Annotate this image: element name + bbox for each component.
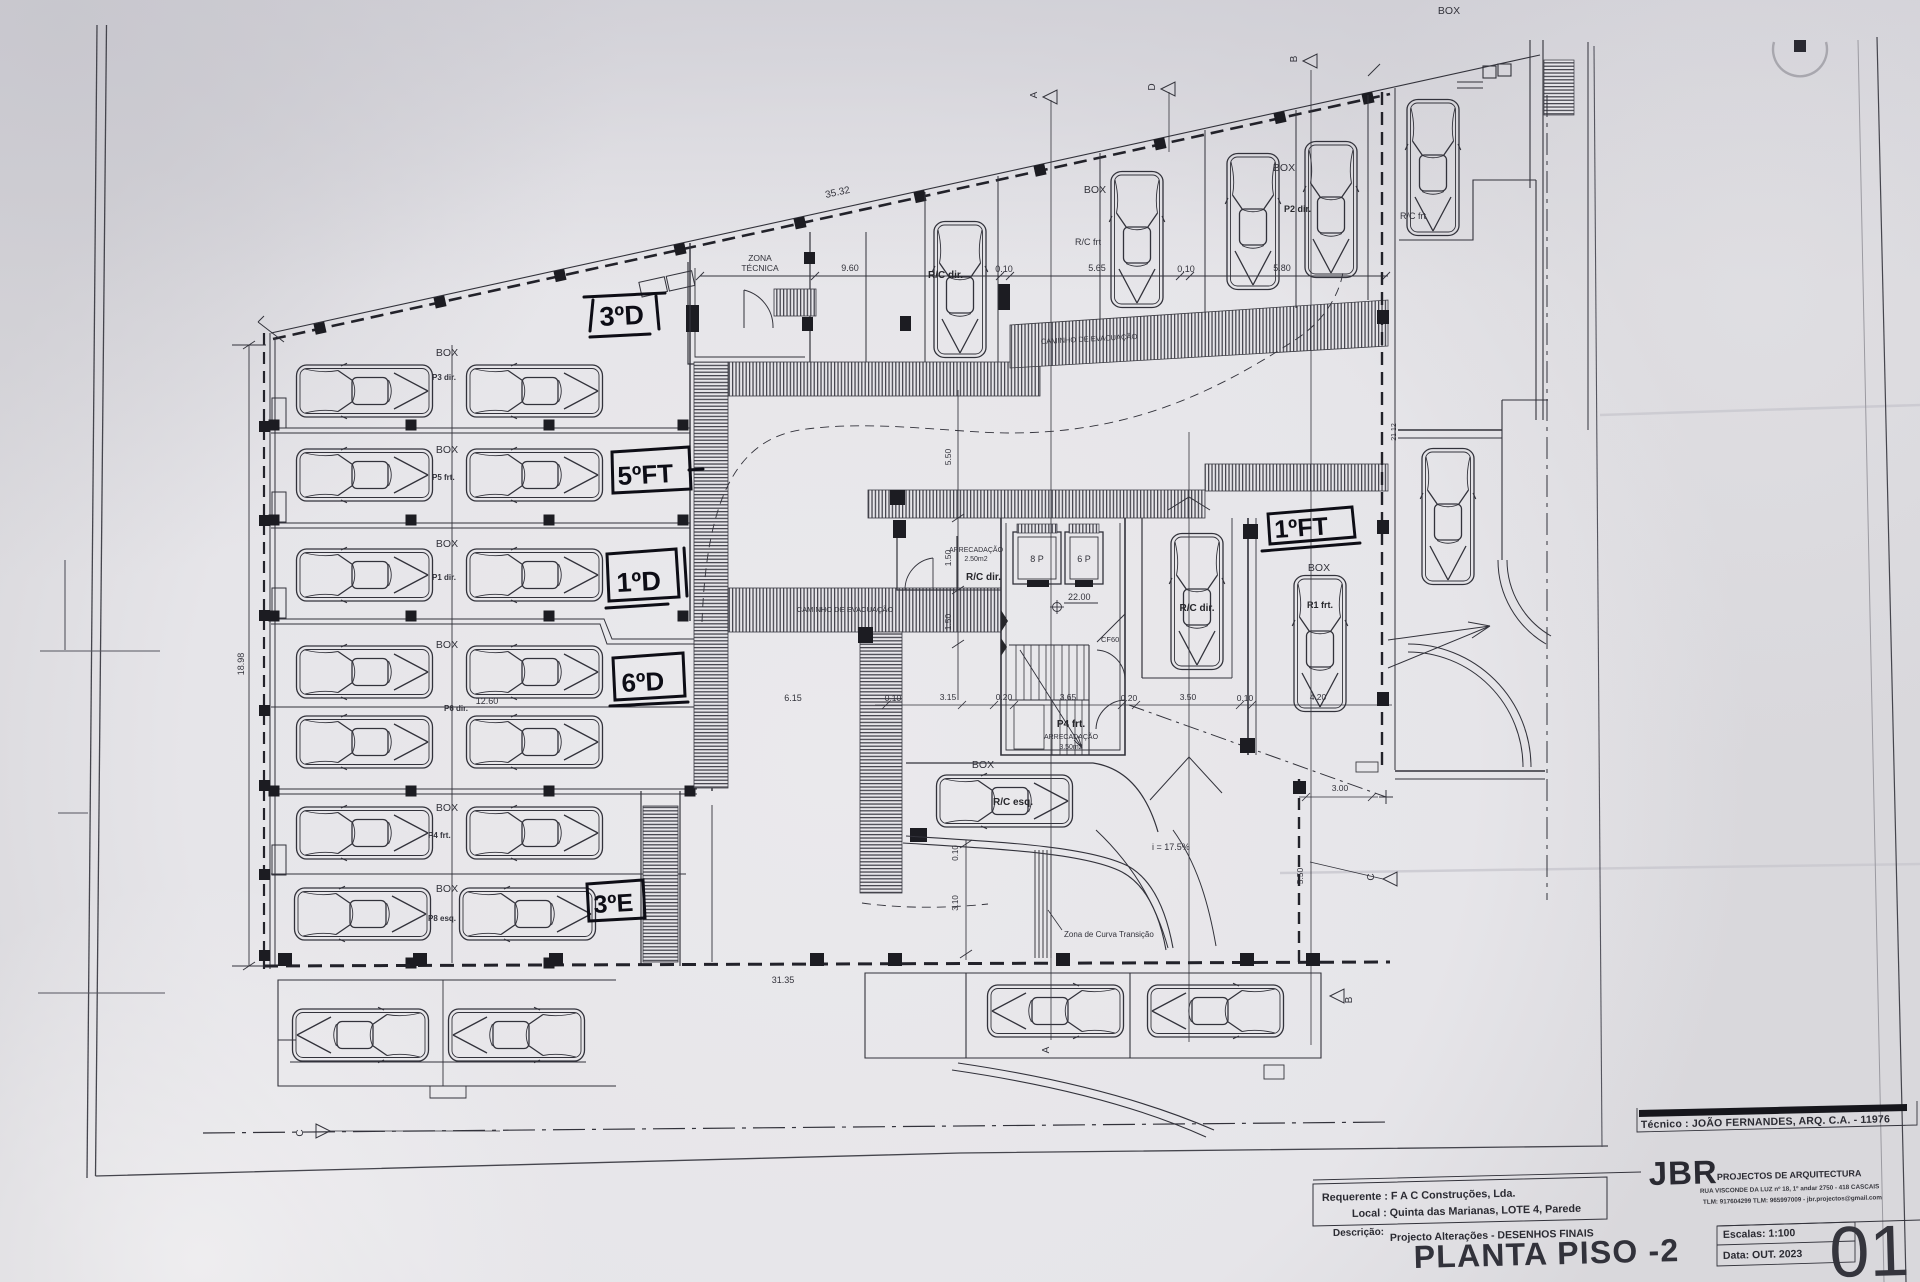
svg-text:JBR: JBR: [1648, 1153, 1718, 1192]
svg-text:3.15: 3.15: [940, 692, 957, 702]
svg-text:3ºE: 3ºE: [593, 889, 634, 919]
svg-text:22.00: 22.00: [1068, 592, 1091, 602]
svg-text:21.12: 21.12: [1391, 423, 1398, 441]
svg-text:BOX: BOX: [436, 538, 458, 550]
svg-text:ZONA: ZONA: [748, 253, 772, 263]
svg-text:BOX: BOX: [1084, 184, 1106, 196]
svg-text:ARRECADAÇÃO: ARRECADAÇÃO: [1044, 732, 1099, 741]
svg-text:6.15: 6.15: [784, 693, 802, 703]
svg-text:BOX: BOX: [436, 883, 458, 895]
svg-text:0.10: 0.10: [1237, 693, 1254, 703]
svg-text:R/C dir.: R/C dir.: [966, 572, 1001, 583]
svg-text:2.50m2: 2.50m2: [964, 556, 987, 563]
svg-text:P3 dir.: P3 dir.: [432, 373, 456, 382]
svg-text:CF60: CF60: [1101, 635, 1119, 644]
svg-text:0.20: 0.20: [1121, 693, 1138, 703]
svg-text:BOX: BOX: [436, 802, 458, 814]
svg-text:5.50: 5.50: [943, 448, 953, 465]
svg-text:R/C dir.: R/C dir.: [1179, 603, 1214, 614]
svg-text:B: B: [1344, 996, 1355, 1003]
svg-text:A: A: [1029, 91, 1040, 98]
svg-text:1ºD: 1ºD: [616, 566, 662, 598]
svg-text:PLANTA PISO -2: PLANTA PISO -2: [1413, 1232, 1680, 1275]
svg-text:TÉCNICA: TÉCNICA: [741, 263, 779, 273]
svg-text:3.65: 3.65: [1060, 692, 1077, 702]
svg-text:0.10: 0.10: [951, 845, 960, 861]
svg-text:P5 frt.: P5 frt.: [432, 473, 455, 482]
svg-text:C: C: [295, 1129, 306, 1136]
svg-text:CAMINHO DE EVACUAÇÃO: CAMINHO DE EVACUAÇÃO: [797, 605, 894, 614]
svg-text:Data: OUT. 2023: Data: OUT. 2023: [1723, 1248, 1803, 1262]
svg-text:D: D: [1147, 83, 1158, 90]
svg-text:P2 dir.: P2 dir.: [1284, 204, 1311, 214]
svg-text:3ºD: 3ºD: [599, 300, 645, 332]
svg-text:BOX: BOX: [972, 759, 994, 771]
svg-text:3.50m2: 3.50m2: [1059, 744, 1082, 751]
svg-text:5ºFT: 5ºFT: [617, 458, 674, 491]
svg-text:P8 esq.: P8 esq.: [428, 914, 456, 923]
svg-text:1ºFT: 1ºFT: [1273, 512, 1328, 544]
svg-text:Escalas: 1:100: Escalas: 1:100: [1723, 1227, 1796, 1241]
svg-text:1.50: 1.50: [943, 613, 953, 630]
svg-text:31.35: 31.35: [772, 975, 795, 985]
svg-text:Zona de Curva Transição: Zona de Curva Transição: [1064, 930, 1154, 939]
svg-text:6 P: 6 P: [1077, 554, 1091, 564]
svg-text:BOX: BOX: [436, 444, 458, 456]
svg-text:5.65: 5.65: [1088, 263, 1106, 273]
svg-text:ARRECADAÇÃO: ARRECADAÇÃO: [949, 545, 1004, 554]
svg-text:01: 01: [1828, 1211, 1910, 1282]
svg-text:BOX: BOX: [436, 347, 458, 359]
svg-text:3.50: 3.50: [1180, 692, 1197, 702]
svg-text:BOX: BOX: [436, 639, 458, 651]
svg-text:P1 dir.: P1 dir.: [432, 573, 456, 582]
svg-text:Descrição:: Descrição:: [1333, 1227, 1384, 1239]
svg-text:P4 frt.: P4 frt.: [1057, 719, 1086, 730]
svg-text:P6 dir.: P6 dir.: [444, 704, 468, 713]
svg-text:BOX: BOX: [1273, 162, 1295, 174]
svg-text:18.98: 18.98: [236, 653, 246, 676]
svg-text:R/C frt: R/C frt: [1400, 211, 1426, 221]
svg-text:BOX: BOX: [1438, 5, 1460, 17]
svg-text:0.10: 0.10: [1177, 264, 1195, 274]
svg-text:6ºD: 6ºD: [621, 666, 665, 698]
svg-text:0.20: 0.20: [996, 692, 1013, 702]
svg-text:B: B: [1289, 55, 1300, 62]
svg-text:0.10: 0.10: [885, 693, 902, 703]
svg-text:9.60: 9.60: [841, 263, 859, 273]
svg-text:A: A: [1041, 1046, 1052, 1053]
svg-text:P4 frt.: P4 frt.: [428, 831, 451, 840]
svg-text:R/C esq.: R/C esq.: [993, 797, 1033, 808]
svg-text:R/C frt: R/C frt: [1075, 237, 1101, 247]
svg-text:12.60: 12.60: [476, 696, 499, 706]
svg-text:3.10: 3.10: [951, 895, 960, 911]
svg-text:8 P: 8 P: [1030, 554, 1044, 564]
svg-text:1.50: 1.50: [943, 549, 953, 566]
svg-text:R/C dir.: R/C dir.: [928, 270, 963, 281]
svg-text:3.00: 3.00: [1332, 783, 1349, 793]
